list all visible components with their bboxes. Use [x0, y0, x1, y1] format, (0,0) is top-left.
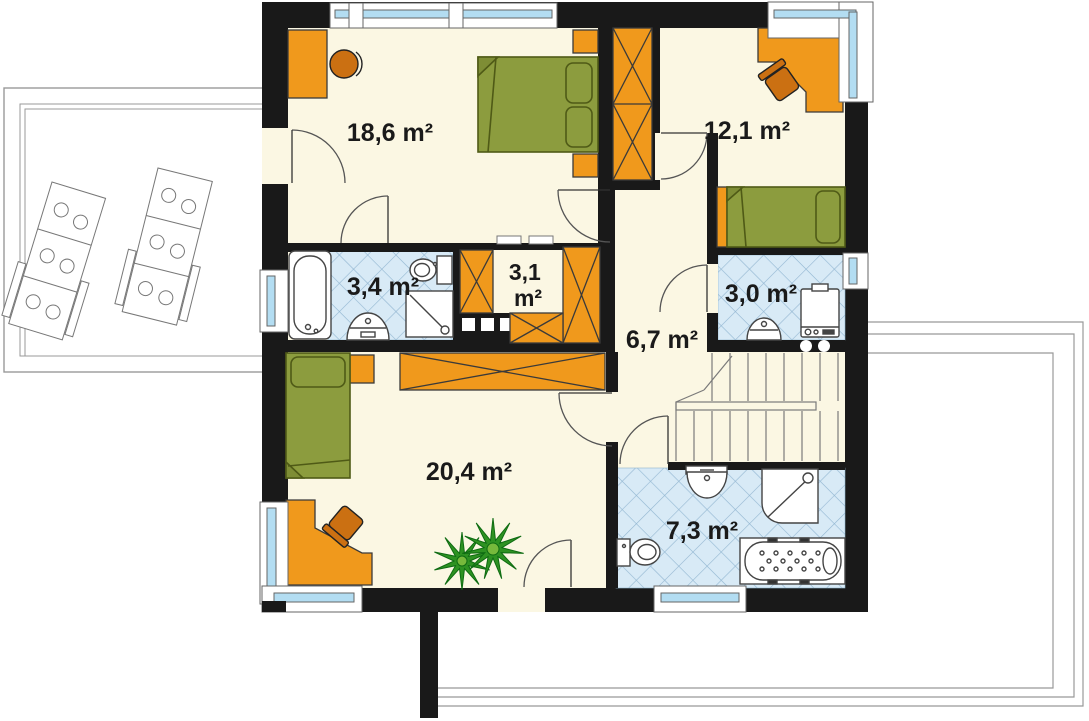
single-bed	[727, 187, 845, 247]
chimney	[420, 600, 438, 718]
wardrobe-icon	[563, 247, 600, 343]
stair-railing	[676, 402, 816, 410]
double-bed	[478, 57, 598, 152]
chair-icon	[330, 50, 358, 78]
room-label-bedroom-bottom: 20,4 m²	[426, 458, 512, 486]
door-gap-bedroom-bottom	[606, 392, 618, 442]
single-bed	[286, 353, 350, 478]
nightstand	[717, 187, 727, 247]
floor-plan: 18,6 m² 12,1 m² 3,4 m² 3,1 m² 3,0 m² 6,7…	[0, 0, 1089, 721]
window	[843, 253, 868, 289]
threshold-mark	[529, 236, 553, 244]
terrace-left	[0, 88, 263, 372]
room-label-wardrobe-closet: 3,1 m²	[509, 259, 547, 311]
room-label-bathroom-left: 3,4 m²	[347, 273, 419, 301]
threshold-mark	[497, 236, 521, 244]
window	[260, 270, 288, 332]
nightstand	[573, 30, 598, 53]
desk	[288, 30, 327, 98]
bathtub-icon	[289, 251, 331, 339]
room-label-bedroom-top-right: 12,1 m²	[704, 117, 790, 145]
room-label-bathroom-bottom: 7,3 m²	[666, 517, 738, 545]
wardrobe-icon	[460, 250, 493, 313]
vent-grille	[481, 318, 494, 331]
room-label-bedroom-top-left: 18,6 m²	[347, 119, 433, 147]
jacuzzi-bathtub-icon	[740, 538, 845, 584]
wardrobe-icon	[510, 313, 563, 343]
room-label-hall: 6,7 m²	[626, 326, 698, 354]
shower-icon	[762, 469, 818, 523]
nightstand	[573, 154, 598, 177]
vent-hole	[818, 340, 830, 352]
vent-hole	[800, 340, 812, 352]
window	[654, 586, 746, 612]
wardrobe-icon	[400, 353, 605, 390]
room-label-bathroom-right: 3,0 m²	[725, 280, 797, 308]
floor-plan-drawing: 18,6 m² 12,1 m² 3,4 m² 3,1 m² 3,0 m² 6,7…	[0, 0, 1089, 721]
water-heater-icon	[801, 284, 839, 337]
nightstand	[350, 355, 374, 383]
toilet-icon	[617, 539, 660, 566]
window	[330, 3, 557, 28]
wardrobe-icon	[613, 28, 652, 180]
vent-grille	[462, 318, 475, 331]
door-gap-bathroom-right	[707, 264, 718, 313]
